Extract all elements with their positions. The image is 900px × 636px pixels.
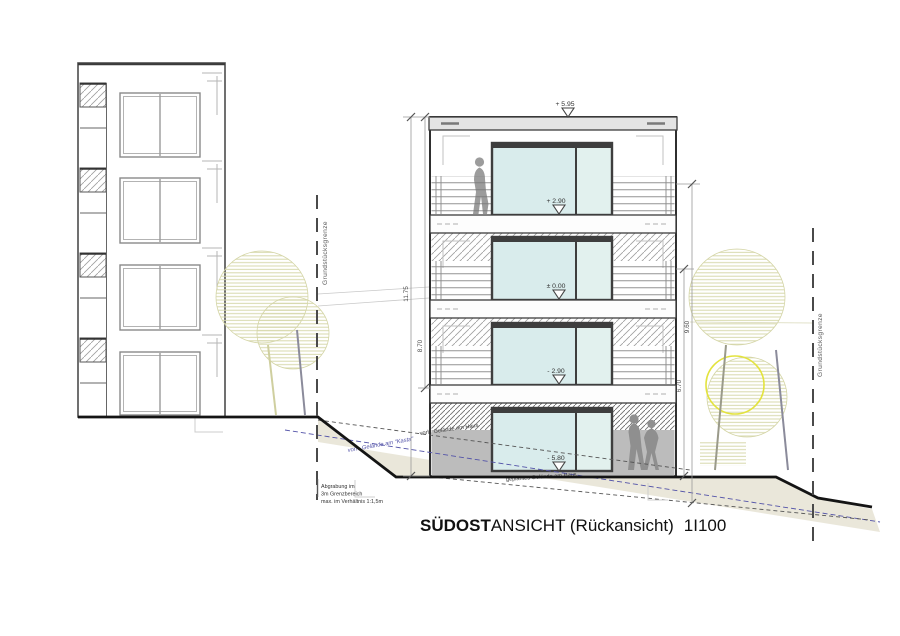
note-line-3: max. im Verhältnis 1:1,5m xyxy=(321,499,384,505)
neighbor-window xyxy=(120,352,200,415)
dim-upper-height: 8.70 xyxy=(417,339,424,352)
boundary-label-right: Grundstücksgrenze xyxy=(817,313,824,377)
note-line-1: Abgrabung im xyxy=(321,484,355,490)
glass-door-f3 xyxy=(492,323,612,385)
elevation-canvas: vorh. Gelände am Haus vorh. Gelände am "… xyxy=(0,0,900,636)
neighbor-window xyxy=(120,265,200,330)
elevation-drawing: vorh. Gelände am Haus vorh. Gelände am "… xyxy=(0,0,900,636)
reference-lines xyxy=(318,287,429,306)
level-value: - 2.90 xyxy=(547,368,565,375)
main-building xyxy=(429,117,677,476)
boundary-label-left: Grundstücksgrenze xyxy=(322,221,329,285)
tree-left xyxy=(216,251,329,415)
label-existing-grade-kasta: vorh. Gelände am "Kasta" xyxy=(347,436,415,454)
neighbor-window xyxy=(120,93,200,157)
note-line-2: 3m Grenzbereich xyxy=(321,492,362,498)
level-marker-triangle xyxy=(562,108,574,117)
title-block: SÜDOSTANSICHT (Rückansicht)1I100 xyxy=(420,516,726,535)
parapet xyxy=(429,117,677,130)
neighbor-basement-hint xyxy=(195,417,223,432)
glass-door-f2 xyxy=(492,237,612,300)
drawing-title: SÜDOSTANSICHT (Rückansicht)1I100 xyxy=(420,516,726,535)
neighbor-building xyxy=(78,63,225,432)
dim-right-inner: 6.70 xyxy=(676,379,683,392)
tree-right-lower xyxy=(700,345,788,470)
level-marker-roof: + 5.95 xyxy=(555,101,574,117)
dim-total-height: 11.75 xyxy=(403,286,410,302)
tree-right-upper xyxy=(689,249,812,345)
dim-right-outer: 9.60 xyxy=(684,320,691,333)
level-value: - 5.80 xyxy=(547,455,565,462)
bush xyxy=(700,441,746,466)
excavation-note: Abgrabung im 3m Grenzbereich max. im Ver… xyxy=(318,479,384,505)
title-bold: SÜDOST xyxy=(420,516,491,535)
title-scale: 1I100 xyxy=(684,516,727,535)
level-value: + 2.90 xyxy=(546,198,565,205)
level-value: ± 0.00 xyxy=(547,283,566,290)
level-value: + 5.95 xyxy=(555,101,574,108)
neighbor-window xyxy=(120,178,200,243)
title-rest: ANSICHT (Rückansicht) xyxy=(491,516,674,535)
